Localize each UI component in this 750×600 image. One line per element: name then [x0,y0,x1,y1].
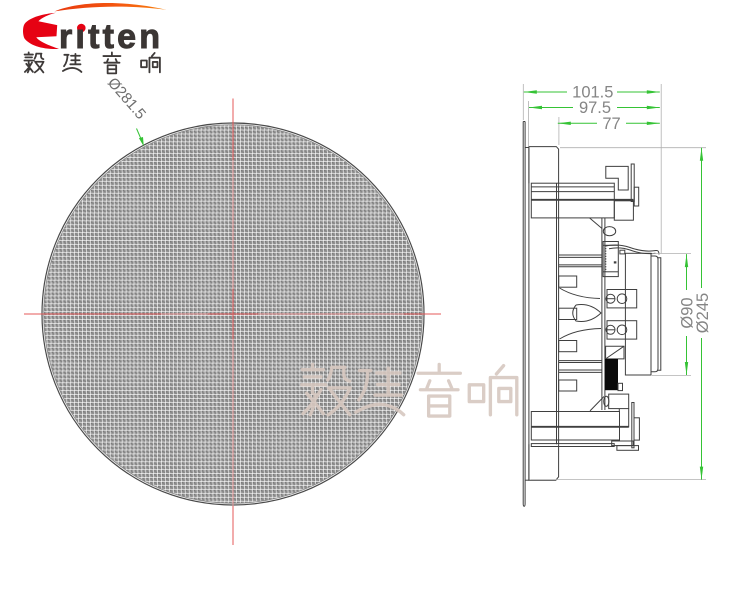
svg-text:rıtten: rıtten [59,18,163,56]
svg-text:Ø245: Ø245 [694,293,712,333]
svg-text:Ø281.5: Ø281.5 [104,74,149,122]
svg-text:77: 77 [602,115,620,133]
